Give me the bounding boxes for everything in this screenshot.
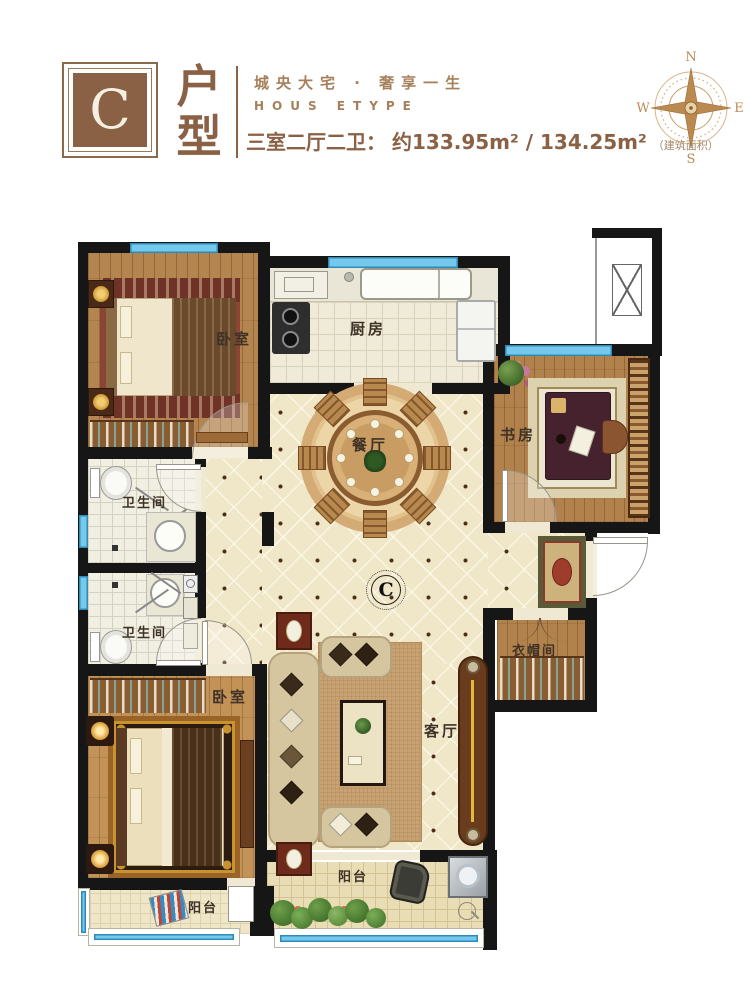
door-leaf	[196, 432, 248, 443]
table-plant-icon	[355, 718, 371, 734]
door-leaf	[502, 470, 508, 522]
wall	[78, 878, 227, 890]
wardrobe	[500, 656, 584, 700]
lamp-icon	[93, 394, 109, 410]
label-balcony-left: 阳台	[188, 897, 218, 916]
plant-icon	[366, 908, 386, 928]
toilet-tank	[90, 632, 100, 662]
washer-drum-icon	[456, 864, 480, 888]
plant-icon	[498, 360, 524, 386]
entry-door-swing-arc	[593, 541, 648, 596]
wall	[483, 522, 505, 533]
plate-icon	[370, 487, 380, 497]
plate-icon	[404, 453, 414, 463]
wardrobe	[90, 678, 206, 713]
lamp-icon	[91, 722, 109, 740]
threshold	[312, 852, 420, 860]
bed-headboard	[106, 298, 117, 396]
counter-box-inner	[284, 277, 314, 292]
wall	[262, 512, 274, 546]
toilet-tank	[90, 468, 100, 498]
label-bedroom-bottom: 卧室	[212, 686, 248, 707]
threshold	[200, 664, 252, 676]
coffee-table	[340, 700, 386, 786]
table-book-icon	[348, 756, 362, 765]
entry-door-leaf	[593, 537, 648, 544]
window	[505, 345, 612, 356]
tv-screen-line	[471, 680, 474, 822]
window	[130, 243, 218, 253]
cabinet-knob-icon	[466, 828, 480, 842]
dresser	[240, 740, 254, 848]
label-dining: 餐厅	[352, 434, 388, 455]
window	[94, 934, 234, 940]
wall	[258, 242, 270, 457]
label-bath-lower: 卫生间	[122, 622, 167, 641]
pillow	[120, 352, 132, 384]
dining-chair	[423, 446, 451, 470]
cabinet-knob-icon	[466, 660, 480, 674]
bath-cabinet	[183, 597, 198, 619]
sink-divider	[438, 270, 440, 298]
window	[280, 935, 478, 942]
side-table-plate-icon	[286, 620, 302, 642]
label-study: 书房	[500, 424, 536, 445]
plate-icon	[346, 477, 356, 487]
door-leaf	[156, 660, 201, 666]
floorplan-page: C 户 型 城央大宅 · 奢享一生 HOUS ETYPE 三室二厅二卫： 约13…	[0, 0, 750, 983]
plate-icon	[394, 477, 404, 487]
window	[328, 257, 458, 268]
inkwell-icon	[556, 434, 566, 444]
label-bath-upper: 卫生间	[122, 492, 167, 511]
bed-blanket	[172, 728, 222, 866]
pillow	[120, 306, 132, 338]
burner-icon	[282, 308, 299, 325]
window	[81, 891, 86, 933]
label-living: 客厅	[424, 720, 460, 741]
threshold	[505, 522, 550, 533]
floor-drain-icon	[112, 545, 118, 551]
wall	[432, 383, 510, 394]
wall	[652, 228, 662, 352]
fridge-divider	[458, 328, 494, 330]
plate-icon	[394, 429, 404, 439]
label-cloakroom: 衣帽间	[512, 640, 557, 659]
lamp-icon	[93, 286, 109, 302]
fridge	[456, 300, 496, 362]
wall	[550, 522, 660, 533]
burner-icon	[282, 331, 299, 348]
wall	[568, 608, 597, 620]
floor-drain-icon	[112, 582, 118, 588]
wall	[78, 447, 192, 459]
wall	[483, 356, 494, 522]
pillow	[130, 738, 142, 774]
wall	[255, 664, 267, 890]
sink-basin-icon	[154, 520, 186, 552]
wall	[78, 563, 206, 573]
side-table-plate-icon	[286, 849, 302, 869]
elevator-shaft-icon	[612, 264, 642, 316]
shaft-line	[595, 238, 597, 344]
bed-sheet-fold	[162, 728, 172, 866]
desk-lamp-icon	[551, 398, 566, 413]
window	[79, 576, 88, 610]
window	[79, 515, 88, 548]
kitchen-sink	[360, 268, 472, 300]
dining-chair	[363, 378, 387, 406]
wall	[248, 447, 272, 459]
label-bedroom-top: 卧室	[216, 328, 252, 349]
plate-icon	[370, 419, 380, 429]
label-kitchen: 厨房	[350, 318, 386, 339]
washer-drum-icon	[186, 579, 195, 588]
label-balcony-main: 阳台	[338, 866, 368, 885]
entry-rug-medallion	[552, 558, 572, 586]
dining-chair	[363, 510, 387, 538]
dining-chair	[298, 446, 326, 470]
floor-plan: C	[0, 0, 750, 983]
lamp-icon	[91, 850, 109, 868]
door-leaf	[202, 621, 208, 665]
pillow	[130, 788, 142, 824]
door-leaf	[156, 464, 201, 470]
unit-marker: C	[371, 575, 401, 605]
faucet-icon	[344, 272, 354, 282]
wall	[488, 700, 597, 712]
wardrobe	[90, 420, 194, 447]
plate-icon	[336, 453, 346, 463]
bookshelf	[628, 358, 650, 518]
bed-headboard	[116, 728, 127, 866]
balcony-door-panel	[228, 886, 254, 922]
